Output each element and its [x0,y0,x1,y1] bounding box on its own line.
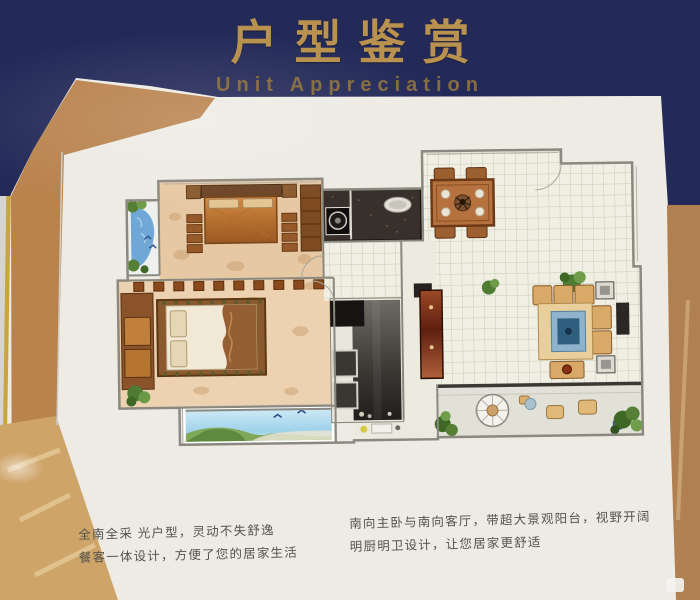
cabinet-unit [333,382,357,408]
cushion [578,400,596,414]
bedroom-balcony [127,199,160,275]
bowl [562,365,571,374]
description-right: 南向主卧与南向客厅，带超大景观阳台，视野开阔 明厨明卫设计，让您居家更舒适 [349,506,651,559]
light-reflection [666,578,684,592]
blanket [222,305,257,369]
door-mat [372,424,392,433]
tv-unit [616,303,629,335]
showroom-photo: 户型鉴赏 Unit Appreciation 全南全采 光户型，灵动不失舒逸 餐… [0,0,700,600]
plate [525,398,536,409]
bathroom [330,298,404,423]
pillow [170,311,186,337]
cushion [546,405,563,418]
washer [333,350,357,376]
hall-cabinet [420,290,443,378]
pillow [171,341,187,367]
description-left: 全南全采 光户型，灵动不失舒逸 餐客一体设计，方便了您的居家生活 [78,519,298,570]
